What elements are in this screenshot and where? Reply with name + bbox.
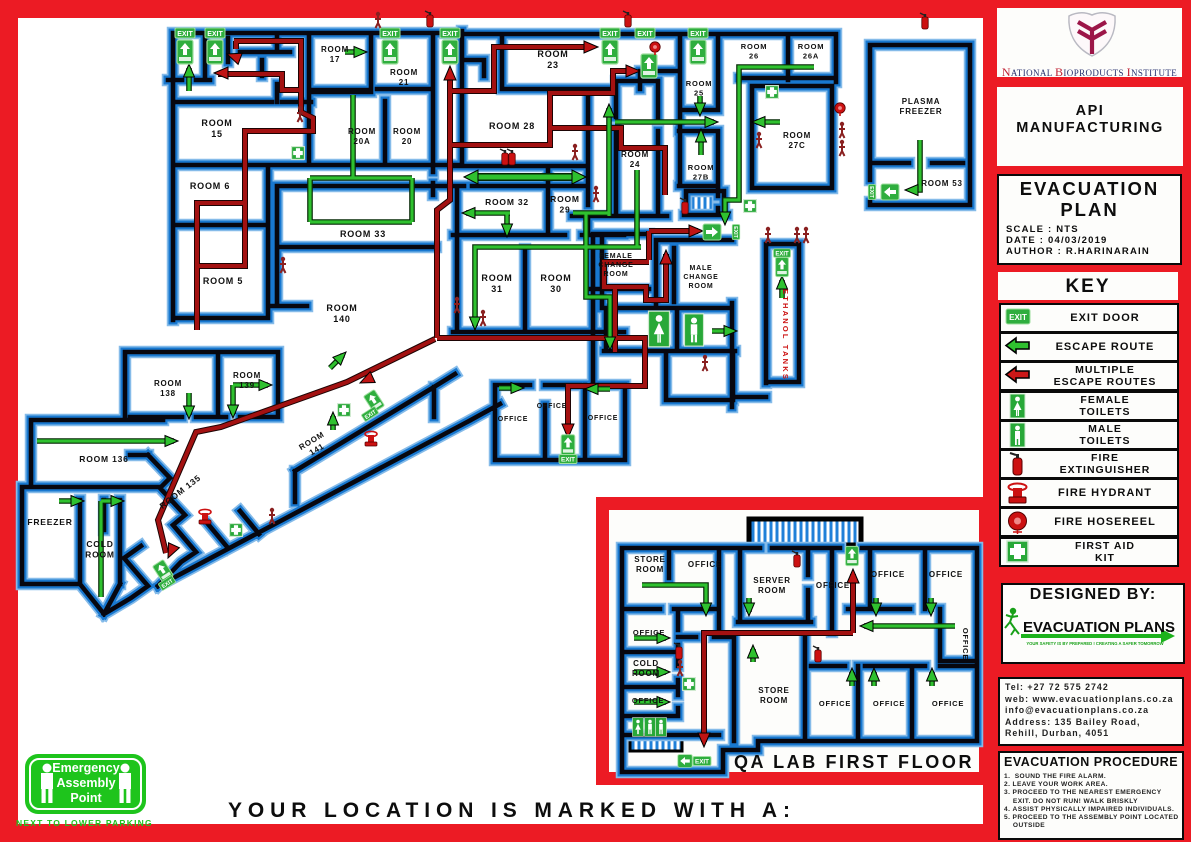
- svg-text:ROOM24: ROOM24: [621, 150, 649, 169]
- svg-text:FREEZER: FREEZER: [27, 517, 72, 527]
- svg-text:ROOM23: ROOM23: [537, 49, 568, 70]
- svg-text:ROOM31: ROOM31: [481, 273, 512, 294]
- svg-text:OFFICE: OFFICE: [819, 699, 851, 708]
- svg-text:OFFICE: OFFICE: [873, 699, 905, 708]
- svg-text:OFFICE: OFFICE: [932, 699, 964, 708]
- svg-text:STOREROOM: STOREROOM: [758, 686, 789, 705]
- svg-text:ROOM 53: ROOM 53: [921, 179, 963, 188]
- svg-text:ROOM 5: ROOM 5: [203, 276, 243, 286]
- svg-text:ROOM 6: ROOM 6: [190, 181, 230, 191]
- svg-text:OFFICE: OFFICE: [961, 628, 970, 660]
- svg-text:ROOM30: ROOM30: [540, 273, 571, 294]
- svg-text:ROOM 33: ROOM 33: [340, 229, 386, 239]
- svg-text:STOREROOM: STOREROOM: [634, 555, 665, 574]
- svg-text:QA LAB FIRST FLOOR: QA LAB FIRST FLOOR: [734, 752, 974, 772]
- svg-text:OFFICE: OFFICE: [588, 415, 618, 422]
- svg-text:OFFICE: OFFICE: [816, 581, 850, 590]
- svg-text:OFFICE: OFFICE: [929, 570, 963, 579]
- svg-text:SERVERROOM: SERVERROOM: [753, 576, 791, 595]
- svg-text:PLASMAFREEZER: PLASMAFREEZER: [900, 97, 943, 116]
- svg-text:OFFICE: OFFICE: [633, 628, 665, 637]
- svg-text:ROOM17: ROOM17: [321, 45, 349, 64]
- svg-text:OFFICE: OFFICE: [688, 560, 722, 569]
- svg-text:OFFICE: OFFICE: [871, 570, 905, 579]
- svg-text:ROOM 28: ROOM 28: [489, 121, 535, 131]
- svg-text:OFFICE: OFFICE: [498, 416, 528, 423]
- svg-text:OFFICE: OFFICE: [537, 403, 567, 410]
- svg-text:ROOM27C: ROOM27C: [783, 131, 811, 150]
- svg-text:ROOM140: ROOM140: [326, 303, 357, 324]
- svg-text:MALECHANGEROOM: MALECHANGEROOM: [683, 265, 718, 290]
- svg-text:FEMALECHANGEROOM: FEMALECHANGEROOM: [598, 253, 633, 278]
- svg-text:COLDROOM: COLDROOM: [632, 659, 660, 678]
- svg-text:COLDROOM: COLDROOM: [85, 539, 115, 560]
- svg-text:ROOM 136: ROOM 136: [79, 454, 128, 464]
- svg-text:ROOM25: ROOM25: [686, 79, 713, 98]
- svg-text:ROOM26: ROOM26: [741, 42, 768, 61]
- svg-text:ROOM20: ROOM20: [393, 127, 421, 146]
- svg-text:ROOM15: ROOM15: [201, 118, 232, 139]
- svg-text:ROOM27B: ROOM27B: [688, 163, 715, 182]
- svg-text:ROOM26A: ROOM26A: [798, 42, 825, 61]
- svg-text:ETHANOL TANKS: ETHANOL TANKS: [781, 289, 790, 381]
- svg-text:ROOM 32: ROOM 32: [485, 197, 529, 207]
- svg-text:ROOM138: ROOM138: [154, 379, 182, 398]
- svg-text:OFFICE: OFFICE: [632, 696, 664, 705]
